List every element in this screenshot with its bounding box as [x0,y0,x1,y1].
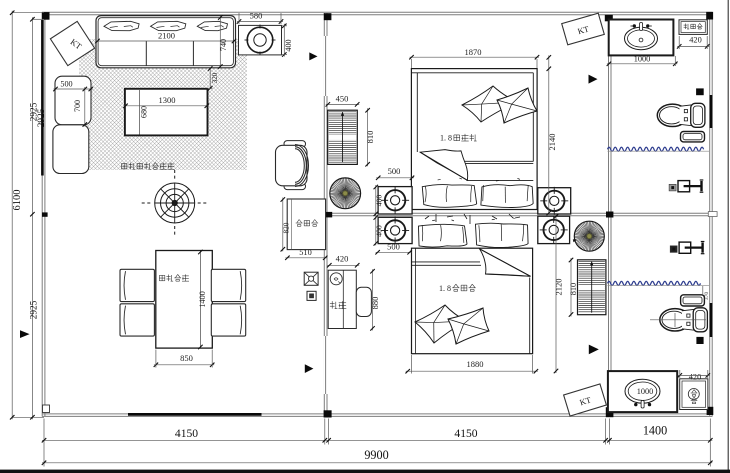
svg-text:2120: 2120 [554,279,564,296]
svg-text:880: 880 [370,297,380,310]
svg-text:420: 420 [336,253,349,263]
svg-text:1870: 1870 [465,47,482,57]
svg-text:420: 420 [689,373,701,382]
svg-text:4150: 4150 [454,427,477,440]
svg-text:9900: 9900 [364,448,388,462]
svg-text:810: 810 [569,283,578,295]
svg-text:6100: 6100 [12,190,23,211]
svg-text:740: 740 [219,39,228,51]
svg-text:500: 500 [387,242,400,252]
svg-text:500: 500 [388,166,401,176]
svg-text:1. 8: 1. 8 [440,134,452,143]
svg-text:1000: 1000 [637,387,654,396]
svg-text:680: 680 [140,106,149,118]
svg-text:400: 400 [374,195,383,207]
svg-text:450: 450 [336,93,349,103]
svg-text:810: 810 [365,131,375,144]
svg-text:580: 580 [250,10,263,20]
svg-text:370: 370 [704,292,710,301]
svg-text:1880: 1880 [467,359,484,369]
svg-text:2925: 2925 [37,108,47,127]
svg-text:500: 500 [60,79,72,88]
svg-text:320: 320 [211,72,219,83]
svg-text:2100: 2100 [158,31,175,41]
svg-text:1000: 1000 [634,55,651,64]
svg-text:510: 510 [299,248,311,257]
svg-text:4150: 4150 [175,427,198,440]
svg-text:1400: 1400 [198,291,207,308]
svg-text:2140: 2140 [547,134,557,151]
svg-text:850: 850 [180,353,193,363]
svg-text:400: 400 [374,225,383,237]
svg-text:700: 700 [73,100,82,112]
svg-text:400: 400 [284,39,293,51]
svg-text:2925: 2925 [30,300,40,319]
svg-text:1400: 1400 [643,424,667,438]
svg-text:420: 420 [689,36,701,45]
svg-text:1. 8: 1. 8 [439,284,451,293]
svg-text:1300: 1300 [159,95,176,105]
